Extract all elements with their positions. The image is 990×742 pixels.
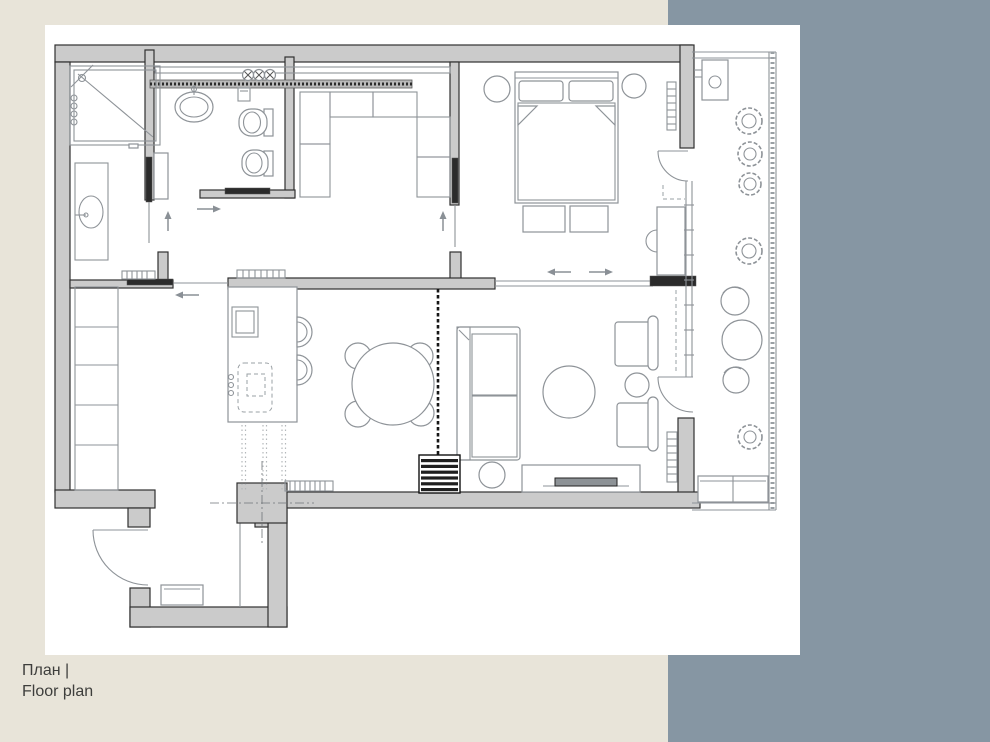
- wardrobe-cells: [300, 92, 450, 197]
- armchair-top: [615, 316, 658, 370]
- caption-line-en: Floor plan: [22, 681, 93, 702]
- nightstand-stool-right: [622, 74, 646, 98]
- floor-lamp: [479, 462, 505, 488]
- caption-line-ru: План |: [22, 660, 93, 681]
- side-table: [625, 373, 649, 397]
- dining-area: [345, 343, 434, 427]
- wc-sink: [175, 85, 213, 122]
- hall-wardrobe: [75, 287, 118, 490]
- entry-door: [93, 530, 148, 585]
- tv-console: [522, 465, 640, 492]
- wc: [175, 85, 273, 176]
- plants: [736, 108, 762, 449]
- bedroom-radiator: [667, 82, 676, 130]
- kitchen: [122, 270, 333, 491]
- ceiling-soffit: [150, 67, 450, 88]
- coffee-table: [543, 366, 595, 418]
- hall-radiator: [122, 271, 155, 279]
- page: { "caption": { "line1": "План |", "line2…: [0, 0, 990, 742]
- doormat: [161, 585, 203, 605]
- flush-plate: [238, 88, 250, 101]
- wall-radiator: [237, 270, 285, 278]
- bidet: [242, 150, 273, 176]
- balcony-door-bedroom: [658, 151, 688, 199]
- balcony-table: [722, 320, 762, 360]
- caption: План | Floor plan: [22, 660, 93, 702]
- floor-plan-sheet: [45, 25, 800, 655]
- living-radiator: [667, 432, 677, 482]
- armchair-bottom: [617, 397, 658, 451]
- bedroom: [484, 72, 685, 275]
- bar-stools: [297, 317, 312, 385]
- balcony-bench: [698, 476, 768, 502]
- desk-chair: [646, 230, 657, 252]
- balcony-door-living: [658, 290, 693, 412]
- double-bed: [515, 72, 618, 203]
- vanity-sink: [75, 163, 108, 260]
- dining-table: [352, 343, 434, 425]
- toilet: [239, 109, 273, 136]
- ceiling-spotlights: [243, 70, 276, 81]
- sofa: [457, 327, 520, 460]
- nightstand-stool-left: [484, 76, 510, 102]
- living-room: [419, 316, 677, 493]
- media-unit: [419, 455, 460, 493]
- balcony-unit: [694, 60, 728, 100]
- bed-bench-left: [523, 206, 565, 232]
- desk: [657, 207, 685, 275]
- kitchen-radiator: [285, 481, 333, 491]
- floor-plan-drawing: [45, 25, 800, 655]
- tv: [555, 478, 617, 486]
- bed-bench-right: [570, 206, 608, 232]
- balcony: [692, 52, 776, 510]
